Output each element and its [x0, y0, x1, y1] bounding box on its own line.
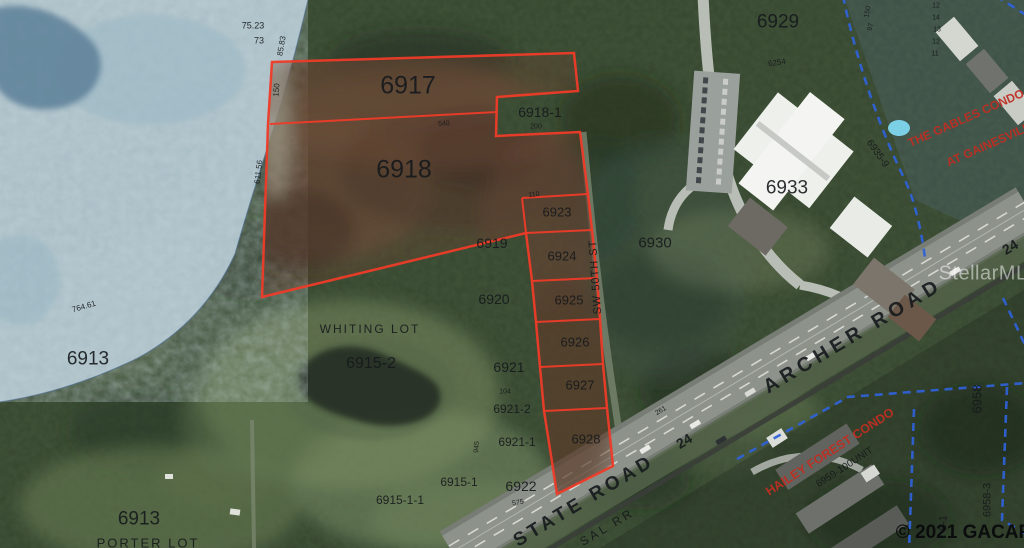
driveway — [252, 420, 254, 548]
stellar-mls-watermark: StellarMLS — [939, 263, 1024, 286]
satellite-map-canvas — [0, 0, 1024, 548]
gacar-copyright: © 2021 GACAR — [896, 522, 1024, 544]
parking-lot — [686, 71, 740, 194]
aerial-parcel-map: 691769186918-16919692069216921-26921-169… — [0, 0, 1024, 548]
pond — [285, 340, 455, 440]
swimming-pool — [888, 120, 910, 136]
